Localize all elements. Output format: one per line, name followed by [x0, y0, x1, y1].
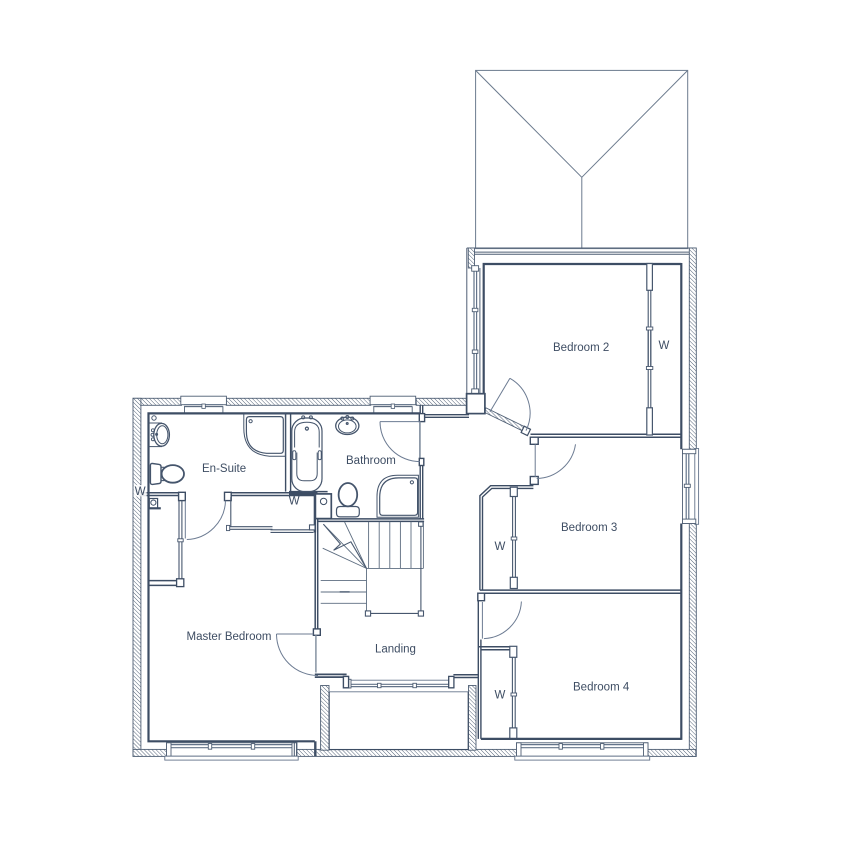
svg-text:Bedroom 4: Bedroom 4: [573, 682, 630, 694]
svg-text:Bathroom: Bathroom: [346, 455, 396, 467]
svg-text:Landing: Landing: [375, 644, 416, 656]
svg-text:W: W: [495, 541, 506, 553]
svg-text:W: W: [659, 340, 670, 352]
svg-text:W: W: [289, 496, 300, 508]
svg-text:Bedroom 2: Bedroom 2: [553, 342, 609, 354]
svg-text:W: W: [495, 690, 506, 702]
svg-text:Master Bedroom: Master Bedroom: [187, 631, 272, 643]
svg-text:Bedroom 3: Bedroom 3: [561, 522, 617, 534]
svg-text:W: W: [135, 486, 146, 498]
svg-text:En-Suite: En-Suite: [202, 463, 246, 475]
